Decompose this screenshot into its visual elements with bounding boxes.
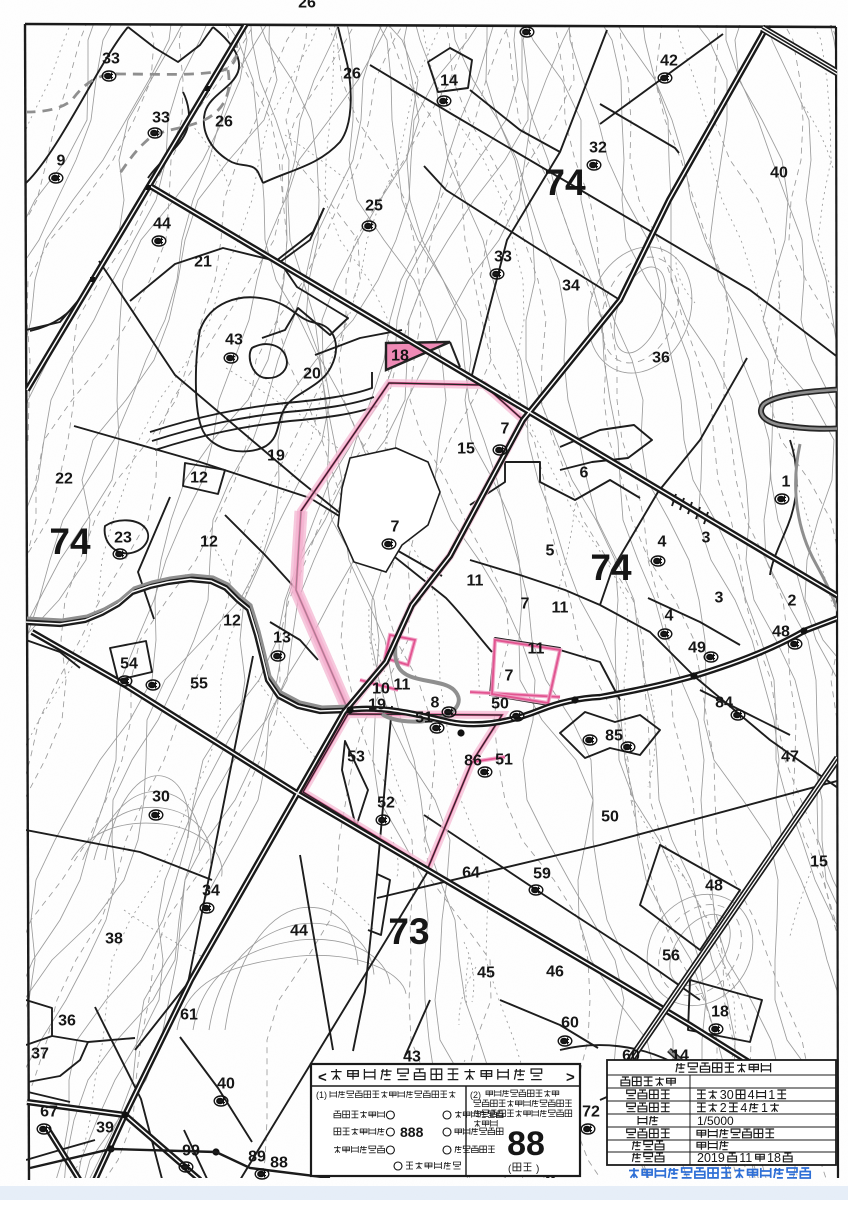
svg-text:18: 18 [711, 1004, 729, 1021]
svg-text:11: 11 [528, 641, 545, 658]
svg-text:26: 26 [343, 66, 361, 83]
svg-text:44: 44 [290, 923, 308, 940]
svg-text:61: 61 [180, 1007, 198, 1024]
svg-text:53: 53 [347, 749, 365, 766]
svg-text:89: 89 [248, 1149, 266, 1166]
svg-text:3: 3 [715, 590, 724, 607]
svg-text:33: 33 [102, 51, 120, 68]
svg-text:1: 1 [768, 1088, 775, 1102]
svg-text:42: 42 [660, 53, 678, 70]
svg-text:67: 67 [40, 1104, 58, 1121]
svg-text:34: 34 [562, 278, 580, 295]
svg-text:22: 22 [55, 471, 73, 488]
svg-text:23: 23 [114, 530, 132, 547]
svg-text:15: 15 [810, 854, 828, 871]
svg-text:59: 59 [533, 866, 551, 883]
svg-text:33: 33 [494, 249, 512, 266]
svg-text:45: 45 [477, 965, 495, 982]
svg-text:30: 30 [720, 1088, 734, 1102]
svg-text:36: 36 [58, 1013, 76, 1030]
svg-text:39: 39 [96, 1120, 114, 1137]
svg-text:2: 2 [788, 593, 797, 610]
svg-text:11: 11 [394, 677, 411, 694]
svg-text:40: 40 [217, 1076, 235, 1093]
svg-text:7: 7 [501, 421, 510, 438]
svg-text:38: 38 [105, 931, 123, 948]
svg-text:7: 7 [391, 519, 400, 536]
svg-text:48: 48 [705, 878, 723, 895]
svg-text:<: < [318, 1069, 327, 1086]
svg-text:12: 12 [200, 534, 218, 551]
svg-text:51: 51 [415, 710, 433, 727]
svg-text:64: 64 [462, 865, 480, 882]
svg-text:(2): (2) [470, 1090, 481, 1100]
svg-text:85: 85 [605, 728, 623, 745]
svg-text:7: 7 [521, 596, 530, 613]
svg-text:60: 60 [561, 1015, 579, 1032]
svg-text:2: 2 [720, 1101, 727, 1115]
svg-text:15: 15 [457, 441, 475, 458]
svg-text:21: 21 [194, 254, 212, 271]
svg-text:86: 86 [464, 753, 482, 770]
svg-text:51: 51 [495, 752, 513, 769]
svg-text:30: 30 [152, 789, 170, 806]
svg-text:>: > [566, 1069, 575, 1086]
svg-text:4: 4 [740, 1101, 747, 1115]
svg-text:43: 43 [225, 332, 243, 349]
svg-text:34: 34 [202, 883, 220, 900]
svg-text:5: 5 [546, 543, 555, 560]
svg-text:4: 4 [748, 1088, 755, 1102]
svg-text:1: 1 [782, 474, 791, 491]
svg-text:4: 4 [658, 534, 667, 551]
svg-text:48: 48 [772, 624, 790, 641]
svg-text:888: 888 [400, 1124, 424, 1140]
svg-text:25: 25 [365, 198, 383, 215]
svg-text:19: 19 [368, 697, 386, 714]
svg-text:73: 73 [388, 911, 429, 952]
svg-text:56: 56 [662, 948, 680, 965]
svg-text:44: 44 [153, 216, 171, 233]
svg-text:2019: 2019 [697, 1151, 725, 1165]
svg-text:14: 14 [440, 73, 458, 90]
svg-text:49: 49 [688, 640, 706, 657]
svg-text:55: 55 [190, 676, 208, 693]
svg-text:47: 47 [781, 749, 799, 766]
svg-text:74: 74 [544, 162, 586, 203]
svg-text:12: 12 [190, 470, 208, 487]
svg-text:50: 50 [491, 696, 509, 713]
svg-text:33: 33 [152, 110, 170, 127]
svg-text:84: 84 [715, 695, 733, 712]
svg-text:74: 74 [49, 521, 91, 562]
svg-text:54: 54 [120, 656, 138, 673]
svg-text:46: 46 [546, 964, 564, 981]
svg-text:52: 52 [377, 795, 395, 812]
svg-text:13: 13 [273, 630, 291, 647]
svg-text:37: 37 [31, 1046, 49, 1063]
svg-text:20: 20 [303, 366, 321, 383]
svg-text:7: 7 [505, 668, 514, 685]
svg-text:19: 19 [267, 448, 285, 465]
svg-text:(1): (1) [316, 1090, 327, 1100]
svg-text:11: 11 [739, 1151, 752, 1165]
svg-text:3: 3 [702, 530, 711, 547]
svg-text:50: 50 [601, 809, 619, 826]
svg-text:32: 32 [589, 140, 607, 157]
svg-text:99: 99 [182, 1143, 200, 1160]
svg-text:1/5000: 1/5000 [697, 1114, 734, 1128]
svg-text:88: 88 [507, 1125, 545, 1163]
svg-text:36: 36 [652, 350, 670, 367]
svg-text:26: 26 [215, 114, 233, 131]
svg-text:18: 18 [767, 1151, 781, 1165]
svg-text:18: 18 [391, 348, 409, 365]
svg-text:): ) [536, 1164, 539, 1175]
svg-text:12: 12 [223, 613, 241, 630]
svg-text:88: 88 [270, 1155, 288, 1172]
svg-text:72: 72 [582, 1104, 600, 1121]
svg-text:11: 11 [552, 600, 569, 617]
svg-text:11: 11 [467, 573, 484, 590]
svg-text:40: 40 [770, 165, 788, 182]
svg-text:74: 74 [590, 547, 632, 588]
svg-text:26: 26 [298, 0, 316, 12]
svg-text:1: 1 [761, 1101, 768, 1115]
svg-text:4: 4 [665, 608, 674, 625]
svg-text:6: 6 [580, 465, 589, 482]
svg-text:9: 9 [57, 153, 66, 170]
svg-text:10: 10 [372, 681, 390, 698]
